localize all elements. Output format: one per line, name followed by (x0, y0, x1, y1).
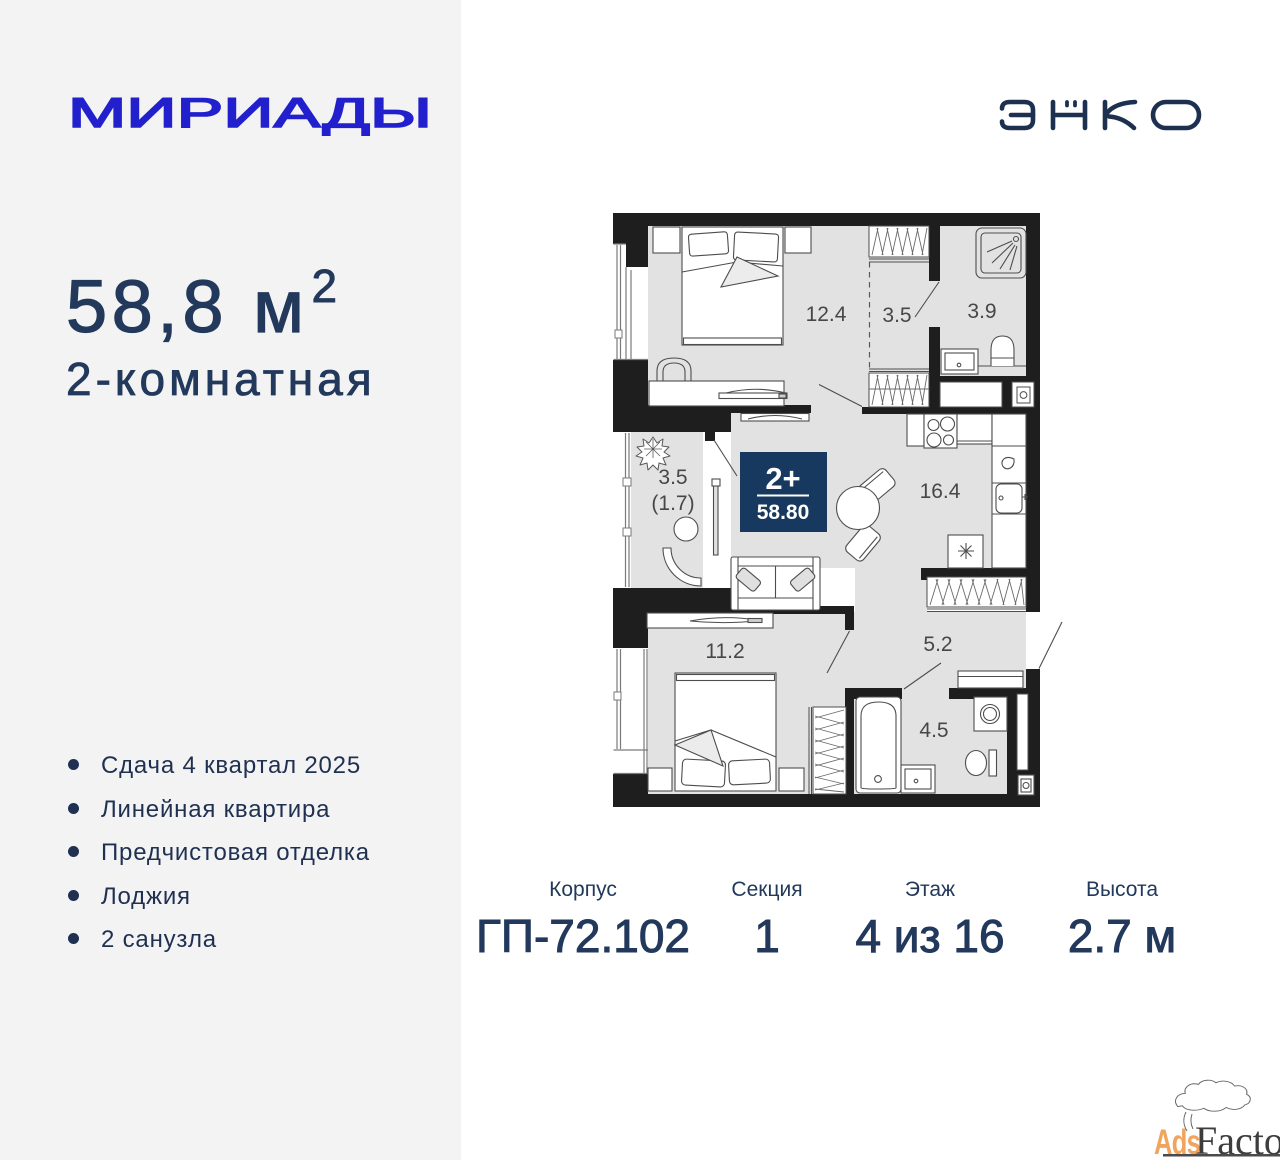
svg-text:11.2: 11.2 (705, 640, 744, 663)
svg-text:58.80: 58.80 (757, 501, 810, 524)
svg-text:2+: 2+ (765, 461, 800, 496)
svg-text:МИРИАДЫ: МИРИАДЫ (68, 89, 432, 136)
svg-text:4.5: 4.5 (919, 719, 948, 742)
svg-text:3.5: 3.5 (658, 466, 687, 489)
svg-text:16.4: 16.4 (920, 480, 961, 503)
svg-text:12.4: 12.4 (806, 303, 847, 326)
svg-text:3.5: 3.5 (882, 304, 911, 327)
svg-text:3.9: 3.9 (967, 300, 996, 323)
svg-text:(1.7): (1.7) (651, 492, 694, 515)
svg-text:5.2: 5.2 (923, 633, 952, 656)
svg-text:Factory: Factory (1195, 1118, 1280, 1160)
